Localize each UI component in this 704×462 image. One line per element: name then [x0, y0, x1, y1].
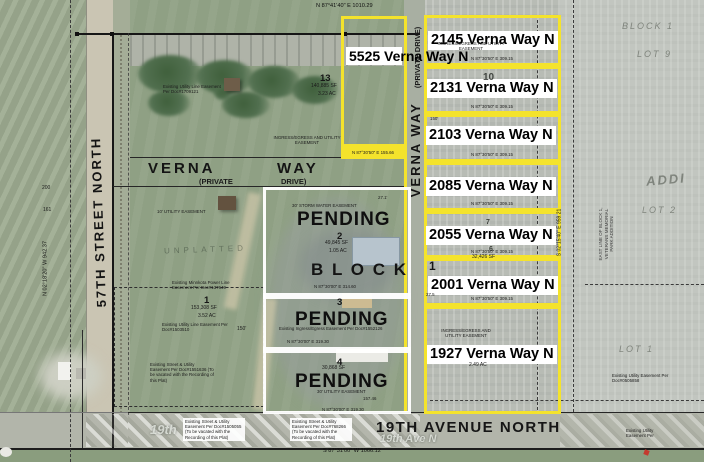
utility-line-easement-1503510: Existing Utility Line Easement Per Doc#1…	[162, 322, 232, 332]
lot10-number: 10	[483, 72, 494, 83]
farmstead-patch	[40, 352, 102, 400]
bearing-east: S 02°15'40" E 959.21	[557, 188, 566, 278]
address-label-5525: 5525 Verna Way N	[346, 47, 402, 65]
lot2-south-bearing: N 87°30'00" E 314.60	[314, 284, 356, 289]
address-label-2085: 2085 Verna Way N	[426, 177, 556, 196]
street-label-private: (PRIVATE	[199, 178, 233, 187]
road-hatch	[86, 414, 128, 447]
street-label-verna-vertical: VERNA WAY (PRIVATE DRIVE)	[408, 12, 424, 212]
bearing-west: N 02°18'20" W 942.37	[43, 214, 52, 324]
utility-easement-0505858: Existing Utility Easement Per Doc#050585…	[612, 373, 676, 383]
east-dashed-line	[573, 0, 574, 412]
dim-27-5: 27.5	[426, 292, 435, 297]
plat-map: N 87°30'50" E 155.66 57TH STREET NORTH N…	[0, 0, 704, 462]
ingress-utility-easement-note: INGRESS/EGRESS AND UTILITY EASEMENT	[268, 135, 346, 145]
house	[218, 196, 236, 210]
bearing-north: N 87°41'40" E 1010.29	[316, 3, 373, 9]
lot13-sf: 140,885 SF	[311, 84, 337, 90]
ghost-lot2: LOT 2	[642, 205, 677, 215]
tree-cluster	[292, 76, 338, 104]
survey-monument	[75, 32, 79, 36]
street-utility-easement-768266: Existing Street & Utility Easement Per D…	[290, 418, 352, 441]
lot4-sf: 30,868 SF	[322, 366, 345, 372]
road-19th-north-line	[128, 412, 704, 413]
dim-150: 150'	[237, 327, 246, 333]
bearing-south: S 87°31'00" W 1066.12	[323, 448, 381, 454]
lot7-number: 7	[486, 219, 490, 226]
address-label-2103: 2103 Verna Way N	[426, 126, 556, 145]
lot2-ac: 1.05 AC	[329, 249, 347, 255]
ghost-lot1: LOT 1	[619, 344, 654, 354]
lot-line-bearing: N 87°30'50" E 309.15	[452, 296, 532, 301]
ingress-utility-easement-note: INGRESS/EGRESS AND UTILITY EASEMENT	[437, 41, 505, 51]
address-label-2055: 2055 Verna Way N	[426, 226, 556, 245]
lot1927-ac: 2.49 AC	[469, 363, 487, 369]
storm-water-easement-note: 30' STORM WATER EASEMENT	[292, 203, 357, 208]
pending-label-lot2: PENDING	[297, 209, 391, 231]
block-number-1: 1	[429, 259, 436, 273]
dim-27-1: 27.1'	[378, 195, 387, 200]
lot1-ac: 3.52 AC	[198, 314, 216, 320]
address-label-2001: 2001 Verna Way N	[428, 276, 558, 295]
address-label-1927: 1927 Verna Way N	[427, 345, 557, 364]
lot1-sf: 153,308 SF	[191, 306, 217, 312]
ghost-lot9: LOT 9	[637, 49, 672, 59]
dim-200: 200	[42, 186, 50, 192]
survey-monument	[110, 32, 114, 36]
ingress-egress-easement-1552126: Existing Ingress/Egress Easement Per Doc…	[279, 326, 382, 331]
highlighted-bearing-chip: N 87°30'50" E 155.66	[341, 147, 405, 159]
lot6-sf: 32,426 SF	[472, 255, 495, 261]
street-label-verna-vertical-main: VERNA WAY	[408, 102, 423, 197]
minnkota-easement-note: Existing Minnkota Power Line Easement Pe…	[172, 280, 238, 290]
road-19th-north-line-west	[0, 412, 128, 413]
lot-line-bearing: N 87°30'50" E 309.15	[452, 249, 532, 254]
section-line	[70, 0, 71, 462]
utility-10-easement-note: 10' UTILITY EASEMENT	[157, 209, 206, 214]
ghost-block1: BLOCK 1	[622, 21, 674, 31]
lot-line-bearing: N 87°30'50" E 309.15	[452, 56, 532, 61]
lot13-ac: 3.23 AC	[318, 92, 336, 98]
road-edge-line	[82, 330, 83, 448]
ghost-19th: 19th	[150, 422, 177, 437]
ingress-utility-easement-note: INGRESS/EGRESS AND UTILITY EASEMENT	[436, 328, 496, 338]
street-utility-easement-1551636: Existing Street & Utility Easement Per D…	[150, 362, 214, 383]
block-word: B L O C K	[311, 260, 408, 280]
lot3-number: 3	[337, 297, 342, 308]
lot-line-bearing: N 87°30'50" E 309.15	[452, 152, 532, 157]
farm-building	[76, 368, 86, 379]
lot-line-bearing: N 87°30'50" E 309.15	[452, 201, 532, 206]
street-label-verna: VERNA	[148, 160, 216, 177]
dim-157-46: 157.46	[363, 396, 376, 401]
east-line-note: EAST LINE OF BLOCK 1, VETERANS MEMORIAL …	[598, 198, 616, 270]
lot4-south-bearing: N 87°30'00" E 319.30	[322, 407, 364, 412]
street-label-way: WAY	[277, 160, 319, 177]
white-object	[0, 447, 12, 457]
utility-line-easement-1709121: Existing Utility Line Easement Per Doc#1…	[163, 84, 227, 94]
lot-5525-outline	[341, 16, 407, 147]
lot-line-bearing: N 87°30'50" E 309.15	[452, 104, 532, 109]
lot2-sf: 49,845 SF	[325, 241, 348, 247]
utility-30-easement-note: 30' UTILITY EASEMENT	[317, 389, 366, 394]
east-dashed-cross-line	[585, 284, 704, 285]
lot1-dashed-boundary	[114, 287, 264, 407]
dim-150-right: 150'	[430, 116, 438, 121]
ghost-19th-ave-n: 19th Ave N	[380, 433, 436, 445]
lot3-south-bearing: N 87°30'00" E 319.30	[287, 339, 329, 344]
street-label-drive: DRIVE)	[281, 178, 306, 187]
utility-easement-partial: Existing Utility Easement Per	[626, 428, 672, 438]
street-utility-easement-1505055: Existing Street & Utility Easement Per D…	[183, 418, 245, 441]
dim-161: 161	[43, 208, 51, 214]
